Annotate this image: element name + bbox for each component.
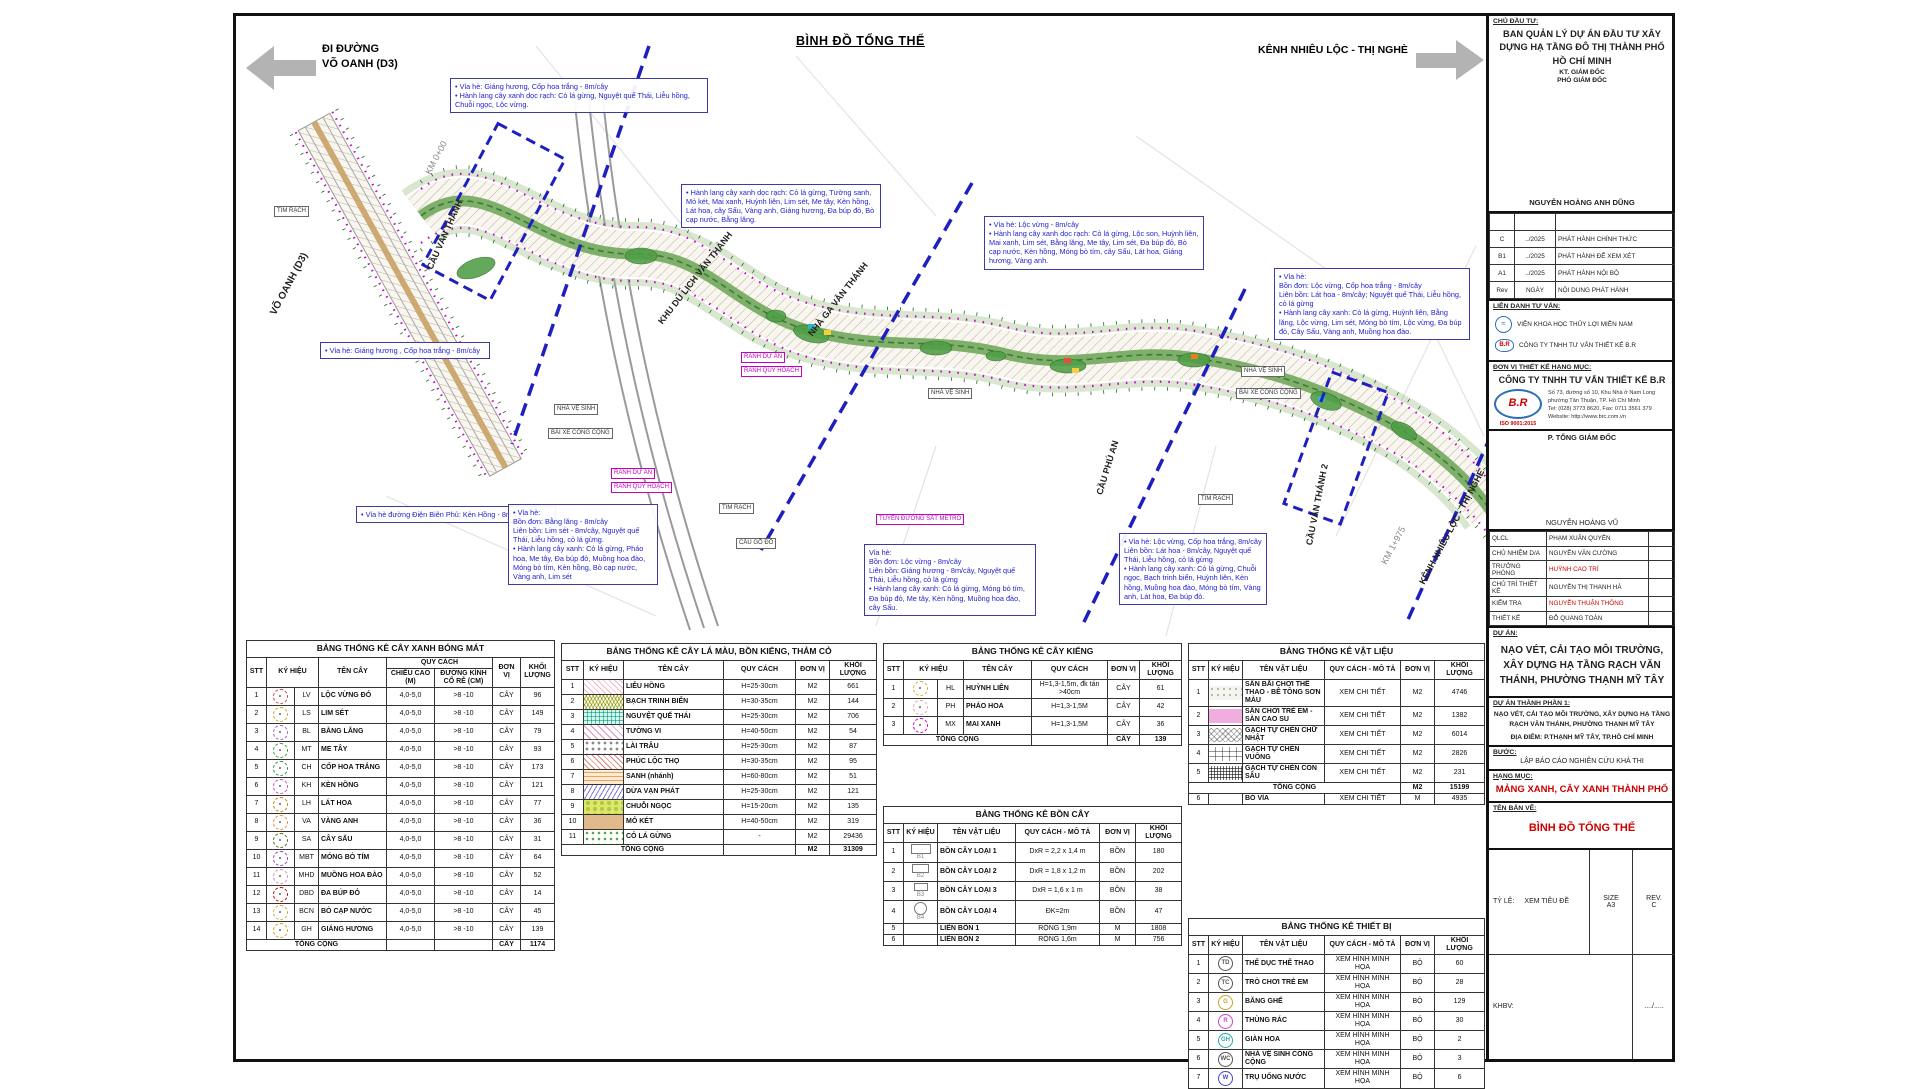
cell-symbol bbox=[267, 903, 295, 921]
table-row: 8 DỪA VẠN PHÁT H=25-30cm M2 121 bbox=[562, 784, 877, 799]
cell-symbol bbox=[904, 923, 938, 934]
tree-symbol-icon bbox=[273, 905, 288, 920]
cell-name: MÓNG BÒ TÍM bbox=[319, 849, 387, 867]
planter-shape-icon bbox=[912, 864, 929, 873]
table-total-row: TỔNG CỘNG M2 15199 bbox=[1189, 783, 1485, 794]
cell-symbol bbox=[584, 814, 624, 829]
company-address: Số 73, đường số 10, Khu Nhà ở Nam Long p… bbox=[1548, 389, 1671, 405]
table-cay-la-mau: BẢNG THỐNG KÊ CÂY LÁ MÀU, BỒN KIỂNG, THẢ… bbox=[561, 643, 877, 856]
tree-symbol-icon bbox=[913, 681, 928, 696]
cell-unit: CÂY bbox=[493, 687, 521, 705]
equipment-symbol-icon: WC bbox=[1218, 1052, 1233, 1067]
drawing-name-label: TÊN BẢN VẼ: bbox=[1493, 805, 1536, 812]
cell-height: 4,0-5,0 bbox=[387, 831, 435, 849]
callout-4: • Hành lang cây xanh dọc rạch: Cỏ lá gừn… bbox=[681, 184, 881, 228]
col-qty: KHỐI LƯỢNG bbox=[521, 657, 555, 687]
cell-symbol bbox=[584, 709, 624, 724]
pattern-swatch-icon bbox=[584, 770, 623, 784]
pattern-swatch-icon bbox=[584, 785, 623, 799]
cell-code: CH bbox=[295, 759, 319, 777]
personnel-name: NGUYỄN THUẬN THÔNG bbox=[1547, 597, 1649, 612]
table-row: 9 CHUỖI NGỌC H=15-20cm M2 135 bbox=[562, 799, 877, 814]
company-phone: Tel: (028) 3773 8620, Fax: 0711 3561 379 bbox=[1548, 405, 1671, 413]
footer-section: TỶ LỆ:XEM TIÊU ĐỀ SIZEA3 REV.C KHBV: ...… bbox=[1489, 850, 1675, 1059]
iso-label: ISO 9001:2015 bbox=[1493, 421, 1543, 427]
table-row: 2 B2 BỒN CÂY LOẠI 2 DxR = 1,8 x 1,2 m BỒ… bbox=[884, 862, 1182, 881]
cell-height: 4,0-5,0 bbox=[387, 723, 435, 741]
table-row: 10 MBT MÓNG BÒ TÍM 4,0-5,0 >8 -10 CÂY 64 bbox=[247, 849, 555, 867]
tree-symbol-icon bbox=[273, 743, 288, 758]
table-row: 7 W TRỤ UỐNG NƯỚC XEM HÌNH MINH HỌA BỘ 6 bbox=[1189, 1069, 1485, 1088]
cell-name: ĐA BÚP ĐỎ bbox=[319, 885, 387, 903]
cell-diameter: >8 -10 bbox=[435, 705, 493, 723]
callout-2: • Vỉa hè: Giáng hương , Cốp hoa trắng - … bbox=[320, 342, 490, 359]
consultant-1: VIỆN KHOA HỌC THỦY LỢI MIỀN NAM bbox=[1517, 321, 1633, 328]
table-row: 4 B4 BỒN CÂY LOẠI 4 ĐK=2m BỒN 47 bbox=[884, 900, 1182, 923]
callout-9: • Vỉa hè: Lộc vừng, Cốp hoa trắng, 8m/câ… bbox=[1119, 533, 1267, 605]
cell-symbol bbox=[584, 694, 624, 709]
table-row: 7 LH LÁT HOA 4,0-5,0 >8 -10 CÂY 77 bbox=[247, 795, 555, 813]
cell-symbol bbox=[584, 754, 624, 769]
table-total-row: TỔNG CỘNG CÂY 1174 bbox=[247, 939, 555, 950]
table-row: 3 GẠCH TỰ CHÈN CHỮ NHẬT XEM CHI TIẾT M2 … bbox=[1189, 726, 1485, 745]
cell-symbol bbox=[904, 698, 938, 716]
table-row: 3 G BĂNG GHẾ XEM HÌNH MINH HỌA BỘ 129 bbox=[1189, 993, 1485, 1012]
pattern-swatch-icon bbox=[584, 695, 623, 709]
label-tim-rach-2: TIM RẠCH bbox=[719, 503, 754, 514]
design-unit-company: CÔNG TY TNHH TƯ VẤN THIẾT KẾ B.R bbox=[1493, 375, 1671, 385]
cell-diameter: >8 -10 bbox=[435, 741, 493, 759]
revision-row bbox=[1490, 214, 1675, 231]
table-row: 5 GH GIÀN HOA XEM HÌNH MINH HỌA BỘ 2 bbox=[1189, 1031, 1485, 1050]
cell-diameter: >8 -10 bbox=[435, 723, 493, 741]
cell-symbol bbox=[584, 769, 624, 784]
cell-stt: 7 bbox=[247, 795, 267, 813]
phase-label: BƯỚC: bbox=[1493, 749, 1517, 756]
table-row: 2 TC TRÒ CHƠI TRẺ EM XEM HÌNH MINH HỌA B… bbox=[1189, 973, 1485, 992]
label-ranh-du-an-2: RANH DỰ ÁN bbox=[611, 468, 655, 479]
cell-code: LV bbox=[295, 687, 319, 705]
cell-symbol: B3 bbox=[904, 882, 938, 901]
cell-qty: 31 bbox=[521, 831, 555, 849]
table-total-row: TỔNG CỘNG M2 31309 bbox=[562, 844, 877, 855]
subproject-section: DỰ ÁN THÀNH PHẦN 1: NẠO VÉT, CẢI TẠO MÔI… bbox=[1489, 698, 1675, 747]
vkh-logo-icon: ≈ bbox=[1495, 316, 1512, 333]
category-label: HẠNG MỤC: bbox=[1493, 773, 1533, 780]
cell-height: 4,0-5,0 bbox=[387, 921, 435, 939]
personnel-name: HUỲNH CAO TRÍ bbox=[1547, 561, 1649, 579]
deputy-director-signer: NGUYỄN HOÀNG VŨ bbox=[1546, 518, 1618, 527]
cell-qty: 93 bbox=[521, 741, 555, 759]
cell-name: ME TÂY bbox=[319, 741, 387, 759]
cell-unit: CÂY bbox=[493, 921, 521, 939]
cell-unit: CÂY bbox=[493, 759, 521, 777]
table-row: 6 WC NHÀ VỆ SINH CÔNG CỘNG XEM HÌNH MINH… bbox=[1189, 1050, 1485, 1069]
owner-label: CHỦ ĐẦU TƯ: bbox=[1493, 18, 1538, 25]
cell-symbol bbox=[1209, 707, 1243, 726]
table-row: 11 MHD MUỒNG HOA ĐÀO 4,0-5,0 >8 -10 CÂY … bbox=[247, 867, 555, 885]
pattern-swatch-icon bbox=[1209, 686, 1242, 700]
cell-height: 4,0-5,0 bbox=[387, 705, 435, 723]
personnel-row: CHỦ TRÌ THIẾT KẾ NGUYỄN THỊ THANH HÀ bbox=[1490, 579, 1675, 597]
cell-name: GIÁNG HƯƠNG bbox=[319, 921, 387, 939]
table-row: 7 SANH (nhánh) H=60-80cm M2 51 bbox=[562, 769, 877, 784]
cell-diameter: >8 -10 bbox=[435, 687, 493, 705]
cell-stt: 5 bbox=[247, 759, 267, 777]
cell-qty: 79 bbox=[521, 723, 555, 741]
cell-symbol: W bbox=[1209, 1069, 1243, 1088]
project-section: DỰ ÁN: NẠO VÉT, CẢI TẠO MÔI TRƯỜNG, XÂY … bbox=[1489, 628, 1675, 698]
cell-unit: CÂY bbox=[493, 831, 521, 849]
table-row: 2 BẠCH TRINH BIỂN H=30-35cm M2 144 bbox=[562, 694, 877, 709]
cell-stt: 13 bbox=[247, 903, 267, 921]
label-bai-xe-2: BÃI XE CÔNG CỘNG bbox=[1236, 388, 1301, 399]
table-row: 11 CỎ LÁ GỪNG - M2 29436 bbox=[562, 829, 877, 844]
design-unit-section: ĐƠN VỊ THIẾT KẾ HẠNG MỤC: CÔNG TY TNHH T… bbox=[1489, 362, 1675, 431]
cell-stt: 4 bbox=[247, 741, 267, 759]
company-website: Website: http://www.brc.com.vn bbox=[1548, 413, 1671, 421]
cell-unit: CÂY bbox=[493, 795, 521, 813]
pattern-swatch-icon bbox=[584, 815, 623, 829]
label-nha-ve-sinh-1: NHÀ VỆ SINH bbox=[554, 404, 598, 415]
cell-height: 4,0-5,0 bbox=[387, 849, 435, 867]
equipment-symbol-icon: TD bbox=[1218, 956, 1233, 971]
cell-name: BÒ CẠP NƯỚC bbox=[319, 903, 387, 921]
owner-signer: NGUYỄN HOÀNG ANH DŨNG bbox=[1529, 198, 1635, 207]
table-row: 5 LÀI TRÂU H=25-30cm M2 87 bbox=[562, 739, 877, 754]
personnel-table: QLCL PHẠM XUÂN QUYỀN CHỦ NHIỆM D/A NGUYỄ… bbox=[1489, 531, 1675, 626]
cell-stt: 3 bbox=[247, 723, 267, 741]
cell-name: BẰNG LĂNG bbox=[319, 723, 387, 741]
pattern-swatch-icon bbox=[1209, 747, 1242, 761]
cell-height: 4,0-5,0 bbox=[387, 777, 435, 795]
cell-symbol: TD bbox=[1209, 954, 1243, 973]
cell-symbol bbox=[267, 777, 295, 795]
table-row: 2 LS LIM SÉT 4,0-5,0 >8 -10 CÂY 149 bbox=[247, 705, 555, 723]
cell-symbol bbox=[1209, 745, 1243, 764]
label-tim-rach-3: TIM RẠCH bbox=[1198, 494, 1233, 505]
cell-symbol bbox=[904, 716, 938, 734]
revision-row: B1 ../2025 PHÁT HÀNH ĐỂ XEM XÉT bbox=[1490, 248, 1675, 265]
cell-unit: CÂY bbox=[493, 813, 521, 831]
table-row: 6 PHÚC LỘC THỌ H=30-35cm M2 95 bbox=[562, 754, 877, 769]
cell-name: LIM SÉT bbox=[319, 705, 387, 723]
table-row: 6 LIÊN BỒN 2 RỘNG 1,6m M 756 bbox=[884, 934, 1182, 945]
col-unit: ĐƠN VỊ bbox=[493, 657, 521, 687]
personnel-role: THIẾT KẾ bbox=[1490, 611, 1547, 626]
cell-symbol: WC bbox=[1209, 1050, 1243, 1069]
size-value: A3 bbox=[1590, 902, 1632, 909]
khbv-value: ..../..... bbox=[1632, 955, 1675, 1059]
table-row: 4 R THÙNG RÁC XEM HÌNH MINH HỌA BỘ 30 bbox=[1189, 1012, 1485, 1031]
revision-table: C ../2025 PHÁT HÀNH CHÍNH THỨC B1 ../202… bbox=[1489, 213, 1675, 299]
khbv-label: KHBV: bbox=[1489, 955, 1632, 1059]
cell-qty: 121 bbox=[521, 777, 555, 795]
pattern-swatch-icon bbox=[584, 725, 623, 739]
cell-name: LỘC VỪNG ĐỎ bbox=[319, 687, 387, 705]
cell-name: CÂY SẤU bbox=[319, 831, 387, 849]
cell-symbol: B4 bbox=[904, 900, 938, 923]
cell-height: 4,0-5,0 bbox=[387, 759, 435, 777]
cell-height: 4,0-5,0 bbox=[387, 885, 435, 903]
tree-symbol-icon bbox=[273, 761, 288, 776]
label-metro: TUYẾN ĐƯỜNG SẮT METRO bbox=[876, 514, 964, 525]
cell-symbol bbox=[267, 921, 295, 939]
header-right-direction: KÊNH NHIÊU LỘC - THỊ NGHÈ bbox=[1258, 44, 1408, 56]
table-row: 4 GẠCH TỰ CHÈN VUÔNG XEM CHI TIẾT M2 282… bbox=[1189, 745, 1485, 764]
cell-stt: 11 bbox=[247, 867, 267, 885]
table-bon-cay: BẢNG THỐNG KÊ BỒN CÂY STTKÝ HIỆU TÊN VẬT… bbox=[883, 806, 1182, 946]
phase-name: LẬP BÁO CÁO NGHIÊN CỨU KHẢ THI bbox=[1493, 758, 1671, 765]
cell-qty: 52 bbox=[521, 867, 555, 885]
equipment-symbol-icon: TC bbox=[1218, 976, 1233, 991]
owner-name: BAN QUẢN LÝ DỰ ÁN ĐẦU TƯ XÂY DỰNG HẠ TẦN… bbox=[1493, 28, 1671, 68]
table-title: BẢNG THỐNG KÊ CÂY LÁ MÀU, BỒN KIỂNG, THẢ… bbox=[562, 644, 877, 661]
cell-qty: 45 bbox=[521, 903, 555, 921]
personnel-row: QLCL PHẠM XUÂN QUYỀN bbox=[1490, 532, 1675, 547]
pattern-swatch-icon bbox=[584, 680, 623, 694]
owner-role-2: PHÓ GIÁM ĐỐC bbox=[1557, 77, 1607, 84]
table-cay-xanh-bong-mat: BẢNG THỐNG KÊ CÂY XANH BÓNG MÁT STT KÝ H… bbox=[246, 640, 555, 951]
personnel-section: QLCL PHẠM XUÂN QUYỀN CHỦ NHIỆM D/A NGUYỄ… bbox=[1489, 531, 1675, 628]
cell-name: KÈN HỒNG bbox=[319, 777, 387, 795]
cell-symbol bbox=[267, 813, 295, 831]
deputy-director-label: P. TỔNG GIÁM ĐỐC bbox=[1548, 433, 1616, 442]
table-row: 5 LIÊN BỒN 1 RỘNG 1,9m M 1808 bbox=[884, 923, 1182, 934]
tree-symbol-icon bbox=[273, 923, 288, 938]
project-name: NẠO VÉT, CẢI TẠO MÔI TRƯỜNG, XÂY DỰNG HẠ… bbox=[1493, 643, 1671, 688]
label-nha-ve-sinh-2: NHÀ VỆ SINH bbox=[928, 388, 972, 399]
tree-symbol-icon bbox=[273, 797, 288, 812]
cell-code: MBT bbox=[295, 849, 319, 867]
personnel-name: PHẠM XUÂN QUYỀN bbox=[1547, 532, 1649, 547]
cell-stt: 12 bbox=[247, 885, 267, 903]
cell-qty: 149 bbox=[521, 705, 555, 723]
cell-symbol bbox=[267, 885, 295, 903]
table-row: 5 CH CỐP HOA TRẮNG 4,0-5,0 >8 -10 CÂY 17… bbox=[247, 759, 555, 777]
cell-symbol bbox=[267, 795, 295, 813]
tree-symbol-icon bbox=[273, 887, 288, 902]
cell-qty: 77 bbox=[521, 795, 555, 813]
cell-symbol bbox=[584, 784, 624, 799]
category-name: MẢNG XANH, CÂY XANH THÀNH PHỐ bbox=[1493, 784, 1671, 795]
cell-unit: CÂY bbox=[493, 885, 521, 903]
cell-symbol bbox=[584, 739, 624, 754]
tree-symbol-icon bbox=[273, 851, 288, 866]
br-logo-icon: B.R ISO 9001:2015 bbox=[1493, 389, 1543, 427]
cell-code: DBD bbox=[295, 885, 319, 903]
tree-symbol-icon bbox=[273, 779, 288, 794]
left-direction-arrow-icon bbox=[246, 46, 316, 90]
cell-unit: CÂY bbox=[493, 705, 521, 723]
label-tim-rach-1: TIM RẠCH bbox=[274, 206, 309, 217]
cell-stt: 1 bbox=[247, 687, 267, 705]
cell-symbol: B1 bbox=[904, 842, 938, 862]
cell-symbol bbox=[584, 799, 624, 814]
table-row: 2 PH PHÁO HOA H=1,3-1,5M CÂY 42 bbox=[884, 698, 1182, 716]
category-section: HẠNG MỤC: MẢNG XANH, CÂY XANH THÀNH PHỐ bbox=[1489, 771, 1675, 803]
personnel-name: NGUYỄN THỊ THANH HÀ bbox=[1547, 579, 1649, 597]
callout-7: • Vỉa hè: Bồn đơn: Bằng lăng - 8m/cây Li… bbox=[508, 504, 658, 585]
table-title: BẢNG THỐNG KÊ CÂY KIỂNG bbox=[884, 644, 1182, 661]
cell-symbol: G bbox=[1209, 993, 1243, 1012]
callout-1: • Vỉa hè: Giáng hương, Cốp hoa trắng - 8… bbox=[450, 78, 708, 113]
cell-diameter: >8 -10 bbox=[435, 903, 493, 921]
right-direction-arrow-icon bbox=[1416, 40, 1484, 80]
cell-symbol bbox=[904, 679, 938, 698]
cell-height: 4,0-5,0 bbox=[387, 741, 435, 759]
revision-row: A1 ../2025 PHÁT HÀNH NỘI BỘ bbox=[1490, 265, 1675, 282]
tree-symbol-icon bbox=[913, 718, 928, 733]
cell-name: MUỒNG HOA ĐÀO bbox=[319, 867, 387, 885]
cell-code: MT bbox=[295, 741, 319, 759]
cell-stt: 2 bbox=[247, 705, 267, 723]
cell-symbol bbox=[584, 829, 624, 844]
table-title: BẢNG THỐNG KÊ VẬT LIỆU bbox=[1189, 644, 1485, 661]
title-block: CHỦ ĐẦU TƯ: BAN QUẢN LÝ DỰ ÁN ĐẦU TƯ XÂY… bbox=[1486, 16, 1675, 1059]
cell-symbol bbox=[267, 723, 295, 741]
cell-symbol bbox=[1209, 679, 1243, 706]
cell-qty: 64 bbox=[521, 849, 555, 867]
personnel-row: CHỦ NHIỆM D/A NGUYỄN VĂN CƯỜNG bbox=[1490, 546, 1675, 561]
table-row: 3 NGUYỆT QUẾ THÁI H=25-30cm M2 706 bbox=[562, 709, 877, 724]
table-row: 14 GH GIÁNG HƯƠNG 4,0-5,0 >8 -10 CÂY 139 bbox=[247, 921, 555, 939]
personnel-name: ĐỖ QUANG TOÀN bbox=[1547, 611, 1649, 626]
col-name: TÊN CÂY bbox=[319, 657, 387, 687]
pattern-swatch-icon bbox=[584, 830, 623, 844]
cell-code: GH bbox=[295, 921, 319, 939]
drawing-name-section: TÊN BẢN VẼ: BÌNH ĐỒ TỔNG THỂ bbox=[1489, 803, 1675, 850]
cell-code: SA bbox=[295, 831, 319, 849]
table-row: 10 MỎ KÉT H=40-50cm M2 319 bbox=[562, 814, 877, 829]
personnel-row: THIẾT KẾ ĐỖ QUANG TOÀN bbox=[1490, 611, 1675, 626]
pattern-swatch-icon bbox=[1209, 709, 1242, 723]
cell-name: VÀNG ANH bbox=[319, 813, 387, 831]
callout-8: Vỉa hè: Bồn đơn: Lộc vừng - 8m/cây Liên … bbox=[864, 544, 1036, 616]
pattern-swatch-icon bbox=[584, 740, 623, 754]
table-row: 9 SA CÂY SẤU 4,0-5,0 >8 -10 CÂY 31 bbox=[247, 831, 555, 849]
cell-symbol bbox=[904, 934, 938, 945]
cell-unit: CÂY bbox=[493, 741, 521, 759]
subproject-name: NẠO VÉT, CẢI TẠO MÔI TRƯỜNG, XÂY DỰNG HẠ… bbox=[1493, 710, 1671, 730]
cell-stt: 8 bbox=[247, 813, 267, 831]
tree-symbol-icon bbox=[273, 707, 288, 722]
drawing-sheet: ĐI ĐƯỜNG VÕ OANH (D3) BÌNH ĐỒ TỔNG THỂ K… bbox=[233, 13, 1675, 1062]
personnel-role: QLCL bbox=[1490, 532, 1547, 547]
table-row: 3 MX MAI XANH H=1,3-1,5M CÂY 36 bbox=[884, 716, 1182, 734]
table-extra-row: 6 BÓ VỈA XEM CHI TIẾT M 4935 bbox=[1189, 794, 1485, 805]
personnel-row: TRƯỞNG PHÒNG HUỲNH CAO TRÍ bbox=[1490, 561, 1675, 579]
tree-symbol-icon bbox=[273, 689, 288, 704]
cell-symbol: TC bbox=[1209, 973, 1243, 992]
cell-symbol bbox=[584, 679, 624, 694]
cell-height: 4,0-5,0 bbox=[387, 867, 435, 885]
equipment-symbol-icon: G bbox=[1218, 995, 1233, 1010]
cell-height: 4,0-5,0 bbox=[387, 903, 435, 921]
planter-shape-icon bbox=[914, 883, 928, 891]
canal-corridor bbox=[421, 167, 1486, 545]
pattern-swatch-icon bbox=[584, 755, 623, 769]
phase-section: BƯỚC: LẬP BÁO CÁO NGHIÊN CỨU KHẢ THI bbox=[1489, 747, 1675, 771]
cell-height: 4,0-5,0 bbox=[387, 687, 435, 705]
scale-value: XEM TIÊU ĐỀ bbox=[1524, 898, 1569, 905]
tree-symbol-icon bbox=[913, 700, 928, 715]
table-row: 3 B3 BỒN CÂY LOẠI 3 DxR = 1,6 x 1 m BỒN … bbox=[884, 882, 1182, 901]
revision-section: C ../2025 PHÁT HÀNH CHÍNH THỨC B1 ../202… bbox=[1489, 213, 1675, 301]
cell-diameter: >8 -10 bbox=[435, 795, 493, 813]
revision-row: Rev NGÀY NỘI DUNG PHÁT HÀNH bbox=[1490, 282, 1675, 299]
table-row: 1 TD THỂ DỤC THỂ THAO XEM HÌNH MINH HỌA … bbox=[1189, 954, 1485, 973]
table-row: 1 HL HUỲNH LIÊN H=1,3-1,5m, đk tán >40cm… bbox=[884, 679, 1182, 698]
cell-symbol bbox=[267, 867, 295, 885]
table-row: 1 B1 BỒN CÂY LOẠI 1 DxR = 2,2 x 1,4 m BỒ… bbox=[884, 842, 1182, 862]
br-logo-small-icon: B.R bbox=[1495, 339, 1514, 352]
label-ranh-du-an-1: RANH DỰ ÁN bbox=[741, 352, 785, 363]
pattern-swatch-icon bbox=[584, 800, 623, 814]
table-row: 5 GẠCH TỰ CHÈN CON SÂU XEM CHI TIẾT M2 2… bbox=[1189, 764, 1485, 783]
cell-code: VA bbox=[295, 813, 319, 831]
cell-symbol bbox=[267, 687, 295, 705]
cell-code: LS bbox=[295, 705, 319, 723]
table-total-row: TỔNG CỘNG CÂY 139 bbox=[884, 734, 1182, 745]
design-unit-label: ĐƠN VỊ THIẾT KẾ HẠNG MỤC: bbox=[1493, 364, 1591, 371]
table-cay-kieng: BẢNG THỐNG KÊ CÂY KIỂNG STTKÝ HIỆU TÊN C… bbox=[883, 643, 1182, 746]
personnel-row: KIỂM TRA NGUYỄN THUẬN THÔNG bbox=[1490, 597, 1675, 612]
cell-diameter: >8 -10 bbox=[435, 813, 493, 831]
rev-value: C bbox=[1633, 902, 1675, 909]
cell-symbol: B2 bbox=[904, 862, 938, 881]
cell-diameter: >8 -10 bbox=[435, 921, 493, 939]
cell-name: CỐP HOA TRẮNG bbox=[319, 759, 387, 777]
cell-diameter: >8 -10 bbox=[435, 849, 493, 867]
drawing-name: BÌNH ĐỒ TỔNG THỂ bbox=[1493, 822, 1671, 834]
table-row: 1 LV LỘC VỪNG ĐỎ 4,0-5,0 >8 -10 CÂY 96 bbox=[247, 687, 555, 705]
cell-symbol: GH bbox=[1209, 1031, 1243, 1050]
col-stt: STT bbox=[247, 657, 267, 687]
table-row: 13 BCN BÒ CẠP NƯỚC 4,0-5,0 >8 -10 CÂY 45 bbox=[247, 903, 555, 921]
consultant-section: LIÊN DANH TƯ VẤN: ≈VIỆN KHOA HỌC THỦY LỢ… bbox=[1489, 301, 1675, 362]
cell-qty: 173 bbox=[521, 759, 555, 777]
cell-stt: 6 bbox=[247, 777, 267, 795]
cell-symbol bbox=[267, 741, 295, 759]
personnel-role: CHỦ TRÌ THIẾT KẾ bbox=[1490, 579, 1547, 597]
cell-code: LH bbox=[295, 795, 319, 813]
project-label: DỰ ÁN: bbox=[1493, 630, 1518, 637]
cell-unit: CÂY bbox=[493, 849, 521, 867]
cell-symbol bbox=[267, 831, 295, 849]
pattern-swatch-icon bbox=[1209, 766, 1242, 780]
table-title: BẢNG THỐNG KÊ THIẾT BỊ bbox=[1189, 919, 1485, 936]
callout-6: • Vỉa hè: Bồn đơn: Lộc vừng, Cốp hoa trắ… bbox=[1274, 268, 1470, 340]
owner-role-1: KT. GIÁM ĐỐC bbox=[1559, 69, 1604, 76]
planter-shape-icon bbox=[911, 844, 931, 854]
owner-section: CHỦ ĐẦU TƯ: BAN QUẢN LÝ DỰ ÁN ĐẦU TƯ XÂY… bbox=[1489, 16, 1675, 213]
tree-symbol-icon bbox=[273, 833, 288, 848]
cell-code: BL bbox=[295, 723, 319, 741]
table-row: 12 DBD ĐA BÚP ĐỎ 4,0-5,0 >8 -10 CÂY 14 bbox=[247, 885, 555, 903]
cell-stt: 9 bbox=[247, 831, 267, 849]
label-ranh-quy-hoach-1: RANH QUY HOẠCH bbox=[741, 366, 802, 377]
table-thiet-bi: BẢNG THỐNG KÊ THIẾT BỊ STTKÝ HIỆU TÊN VẬ… bbox=[1188, 918, 1485, 1089]
scale-label: TỶ LỆ: bbox=[1493, 898, 1514, 905]
label-ranh-quy-hoach-2: RANH QUY HOẠCH bbox=[611, 482, 672, 493]
cell-symbol bbox=[267, 705, 295, 723]
cell-diameter: >8 -10 bbox=[435, 777, 493, 795]
cell-height: 4,0-5,0 bbox=[387, 795, 435, 813]
table-row: 1 LIỄU HỒNG H=25-30cm M2 661 bbox=[562, 679, 877, 694]
personnel-role: KIỂM TRA bbox=[1490, 597, 1547, 612]
table-row: 4 TƯỜNG VI H=40-50cm M2 54 bbox=[562, 724, 877, 739]
